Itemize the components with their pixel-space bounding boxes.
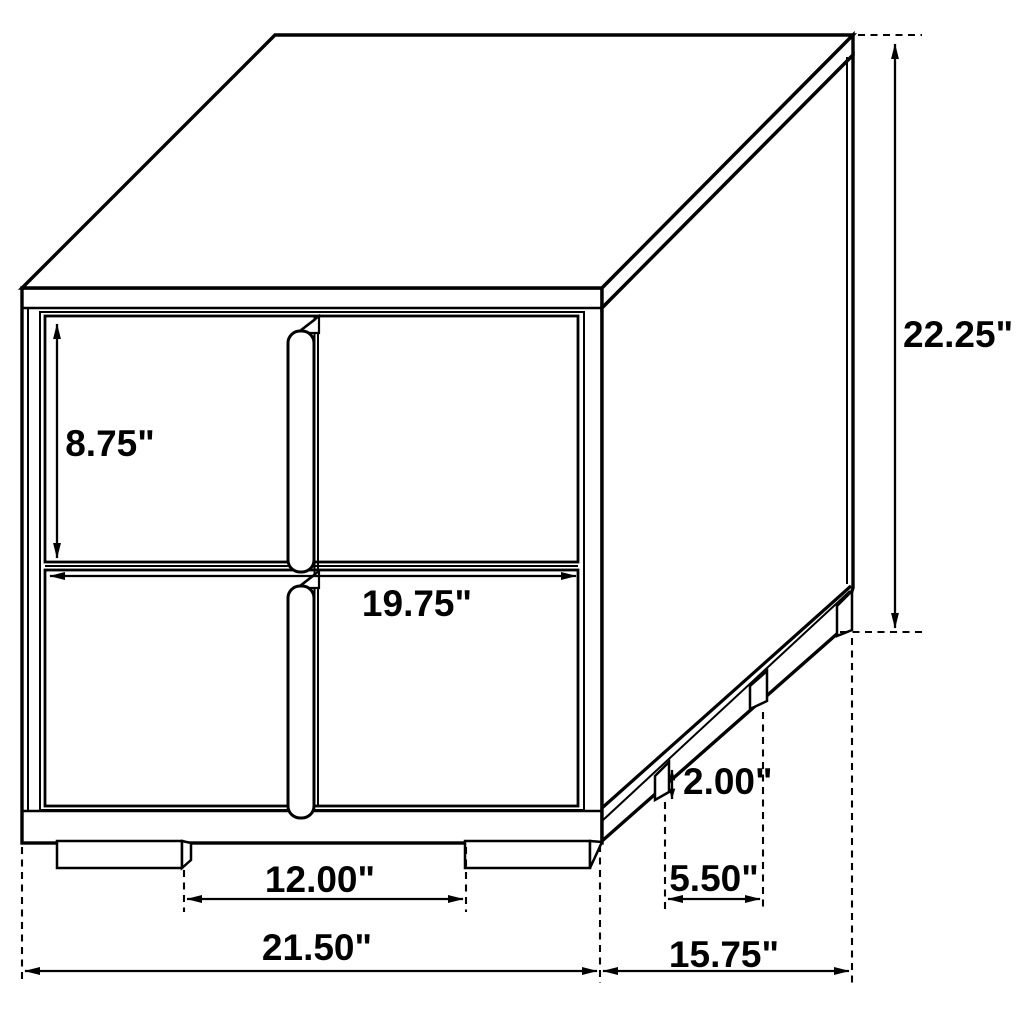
top-drawer-handle [288, 331, 314, 572]
dimension-side-feet-spacing: 5.50" [668, 858, 760, 899]
dimension-overall-height-label: 22.25" [903, 314, 1013, 355]
front-foot-right [465, 841, 590, 868]
dimension-overall-depth: 15.75" [603, 934, 849, 975]
nightstand-dimension-drawing: 8.75" 19.75" 22.25" 2.00" 12.00" 5.50" [0, 0, 1024, 1024]
dimension-diagram-page: 8.75" 19.75" 22.25" 2.00" 12.00" 5.50" [0, 0, 1024, 1024]
dimension-overall-height: 22.25" [895, 44, 1013, 628]
dimension-overall-depth-label: 15.75" [669, 934, 779, 975]
dimension-foot-height: 2.00" [672, 761, 773, 802]
bottom-drawer-handle [288, 586, 314, 818]
dimension-foot-height-label: 2.00" [683, 761, 773, 802]
dimension-front-feet-spacing-label: 12.00" [265, 859, 375, 900]
dimension-overall-width-label: 21.50" [262, 927, 372, 968]
dimension-drawer-height-label: 8.75" [65, 423, 155, 464]
dimension-side-feet-spacing-label: 5.50" [669, 858, 759, 899]
dimension-front-feet-spacing: 12.00" [187, 859, 463, 900]
front-foot-left [57, 841, 182, 868]
dimension-drawer-width-label: 19.75" [362, 583, 472, 624]
dimension-overall-width: 21.50" [25, 927, 597, 971]
front-foot-left-bevel [182, 841, 191, 868]
